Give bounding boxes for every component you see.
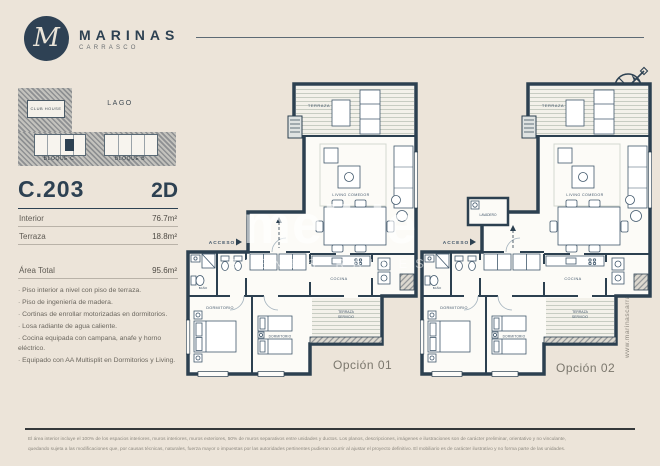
duct-shaft (400, 274, 414, 290)
bloque-b-label: BLOQUE B (104, 156, 156, 162)
service-terrace-label-2: SERVICIO (338, 315, 355, 319)
building-bloque-c (34, 134, 86, 156)
access-label: ACCESO (209, 240, 236, 246)
feature-list: · Piso interior a nivel con piso de terr… (18, 286, 182, 368)
area-label: Terraza (19, 232, 46, 241)
option-2-caption: Opción 02 (556, 361, 615, 375)
area-row-total: Área Total 95.6m² (18, 261, 178, 279)
highlighted-unit-marker (65, 139, 74, 151)
feature-item: · Cocina equipada con campana, anafe y h… (18, 334, 182, 356)
lake-label: LAGO (80, 100, 160, 107)
bloque-c-label: BLOQUE C (34, 156, 84, 162)
bedroom1-label: DORMITORIO (206, 306, 234, 310)
brand-name: MARINAS (79, 27, 179, 43)
terrace-label: TERRAZA (542, 103, 564, 108)
bedroom2-label: DORMITORIO (269, 335, 292, 339)
floor-plan-option-2: TERRAZA LIVING COMEDOR COCINA ACCESO LAV… (420, 82, 652, 378)
brand-subname: CARRASCO (79, 45, 179, 51)
unit-code: C.203 (18, 176, 84, 203)
option-1-caption: Opción 01 (333, 358, 392, 372)
brand-initial: M (33, 23, 60, 53)
service-terrace-label-1: TERRAZA (572, 310, 589, 314)
kitchen-label: COCINA (330, 277, 347, 281)
terrace-deck (530, 86, 648, 135)
feature-item: · Cortinas de enrollar motorizadas en do… (18, 310, 182, 321)
total-label: Área Total (19, 266, 55, 275)
service-terrace-deck (546, 298, 614, 340)
footer-divider (25, 428, 635, 430)
disclaimer-line-2: quedando sujeta a las modificaciones que… (28, 445, 632, 455)
feature-item: · Piso interior a nivel con piso de terr… (18, 286, 182, 297)
brand-logo: M MARINAS CARRASCO (24, 16, 179, 61)
lavadero-room (468, 198, 508, 225)
total-value: 95.6m² (152, 266, 177, 275)
header-divider (196, 37, 644, 38)
feature-item: · Piso de ingeniería de madera. (18, 298, 182, 309)
service-terrace-label-2: SERVICIO (572, 315, 589, 319)
bedroom2-label: DORMITORIO (503, 335, 526, 339)
feature-item: · Losa radiante de agua caliente. (18, 322, 182, 333)
legal-disclaimer: El área interior incluye el 100% de los … (28, 435, 632, 455)
area-row-interior: Interior 76.7m² (18, 209, 178, 227)
terrace-label: TERRAZA (308, 103, 330, 108)
living-label: LIVING COMEDOR (566, 193, 603, 197)
club-house-label: CLUB HOUSE (27, 100, 65, 118)
kitchen-label: COCINA (564, 277, 581, 281)
bath-label: BAÑO (199, 285, 208, 290)
floor-plan-option-1: TERRAZA LIVING COMEDOR COCINA ACCESO BAÑ… (186, 82, 418, 378)
ac-louver (522, 116, 536, 138)
service-terrace-deck (312, 298, 380, 340)
area-label: Interior (19, 214, 44, 223)
disclaimer-line-1: El área interior incluye el 100% de los … (28, 435, 632, 445)
access-label: ACCESO (443, 240, 470, 246)
living-label: LIVING COMEDOR (332, 193, 369, 197)
building-bloque-b (104, 134, 158, 156)
area-row-terraza: Terraza 18.8m² (18, 227, 178, 245)
service-terrace-edge (544, 337, 616, 343)
terrace-deck (296, 86, 414, 135)
ac-louver (288, 116, 302, 138)
bath-label: BAÑO (433, 285, 442, 290)
bedroom1-label: DORMITORIO (440, 306, 468, 310)
duct-shaft (634, 274, 648, 290)
brochure-page: M MARINAS CARRASCO LAGO CLUB HOUSE BLOQU… (0, 0, 660, 466)
area-value: 76.7m² (152, 214, 177, 223)
area-value: 18.8m² (152, 232, 177, 241)
service-terrace-edge (310, 337, 382, 343)
laundry-label: LAVADERO (480, 213, 497, 217)
site-map: LAGO CLUB HOUSE BLOQUE C BLOQUE B (18, 88, 176, 166)
feature-item: · Equipado con AA Multisplit en Dormitor… (18, 356, 182, 367)
service-terrace-label-1: TERRAZA (338, 310, 355, 314)
unit-type: 2D (151, 179, 178, 203)
unit-info-panel: C.203 2D Interior 76.7m² Terraza 18.8m² … (18, 176, 178, 279)
brand-monogram-icon: M (24, 16, 69, 61)
